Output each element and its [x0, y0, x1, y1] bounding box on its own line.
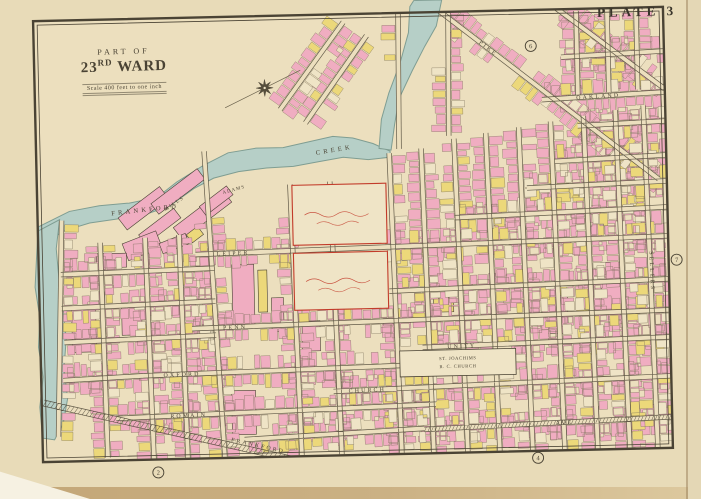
ward-suffix: RD: [97, 57, 112, 67]
map-title-block: PART OF 23RD WARD Scale 400 feet to one …: [49, 45, 198, 97]
plate-ref-7: 7: [671, 254, 682, 265]
svg-text:2: 2: [157, 470, 160, 477]
title-scale: Scale 400 feet to one inch: [83, 82, 166, 96]
street-label-penn: PENN: [223, 325, 247, 332]
street-label-ave: AVE: [556, 420, 574, 427]
ward-number: 23: [81, 60, 98, 76]
scan-bottom-edge: [0, 487, 701, 499]
church-label: ST. JOACHIMS: [439, 355, 477, 361]
scan-page-edge-line: [686, 0, 688, 499]
church-landmark: ST. JOACHIMSR. C. CHURCH: [400, 348, 517, 377]
church-label: R. C. CHURCH: [439, 363, 476, 369]
ward-word: WARD: [117, 58, 167, 75]
svg-text:7: 7: [675, 257, 679, 264]
plate-ref-4: 4: [532, 452, 543, 463]
plate-number-label: PLATE 3: [597, 3, 678, 21]
scan-right-margin: [688, 0, 701, 499]
svg-text:4: 4: [536, 455, 540, 462]
atlas-page: ST. JOACHIMSR. C. CHURCHOAKLANDLEIPERPEN…: [0, 0, 701, 499]
plate-ref-2: 2: [153, 467, 164, 478]
street-label-unity: UNITY: [447, 343, 476, 350]
